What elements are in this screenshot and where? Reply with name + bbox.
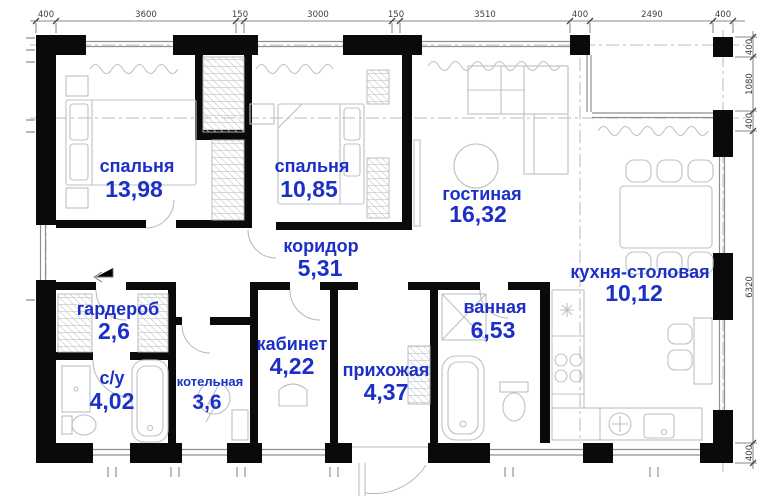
dim-top-3000: 3000 xyxy=(307,10,329,20)
room-area-wc: 4,02 xyxy=(90,388,135,414)
room-area-bathroom: 6,53 xyxy=(471,317,516,343)
room-name-hallway: прихожая xyxy=(343,360,430,380)
dim-top-400a: 400 xyxy=(38,10,54,20)
room-name-wc: с/у xyxy=(99,368,124,388)
room-area-bedroom-2: 10,85 xyxy=(280,176,338,202)
curtain-lines xyxy=(90,62,708,136)
room-name-corridor: коридор xyxy=(283,236,358,256)
dimension-top: 400 3600 150 3000 150 3510 400 2490 400 xyxy=(30,10,745,33)
entry-arrow xyxy=(94,268,113,282)
dim-top-150a: 150 xyxy=(232,10,248,20)
dim-right-400a: 400 xyxy=(745,39,755,55)
floor-plan-canvas: 400 3600 150 3000 150 3510 400 2490 400 … xyxy=(0,0,777,502)
furniture-office xyxy=(279,384,307,406)
room-area-office: 4,22 xyxy=(270,353,315,379)
room-area-kitchen: 10,12 xyxy=(605,280,663,306)
dim-top-400c: 400 xyxy=(715,10,731,20)
dim-right-1080: 1080 xyxy=(745,73,755,95)
room-name-bedroom-1: спальня xyxy=(100,156,175,176)
room-name-bedroom-2: спальня xyxy=(275,156,350,176)
room-name-wardrobe: гардероб xyxy=(77,299,160,319)
dim-top-150b: 150 xyxy=(388,10,404,20)
room-area-wardrobe: 2,6 xyxy=(98,318,130,344)
room-name-bathroom: ванная xyxy=(463,297,526,317)
room-area-corridor: 5,31 xyxy=(298,255,343,281)
room-area-boiler: 3,6 xyxy=(192,391,221,414)
dim-top-2490: 2490 xyxy=(641,10,663,20)
dim-top-3600: 3600 xyxy=(135,10,157,20)
room-name-office: кабинет xyxy=(257,334,328,354)
room-name-boiler: котельная xyxy=(177,374,243,389)
dim-top-3510: 3510 xyxy=(474,10,496,20)
dim-right-400b: 400 xyxy=(745,113,755,129)
dim-top-400b: 400 xyxy=(572,10,588,20)
closets xyxy=(58,57,430,404)
dimension-right: 400 1080 400 6320 400 xyxy=(735,31,757,469)
room-area-living-room: 16,32 xyxy=(449,201,507,227)
room-name-kitchen: кухня-столовая xyxy=(570,262,709,282)
floor-plan: 400 3600 150 3000 150 3510 400 2490 400 … xyxy=(0,0,777,502)
dim-right-6320: 6320 xyxy=(745,276,755,298)
room-area-hallway: 4,37 xyxy=(364,379,409,405)
dim-right-400c: 400 xyxy=(745,445,755,461)
room-area-bedroom-1: 13,98 xyxy=(105,176,163,202)
